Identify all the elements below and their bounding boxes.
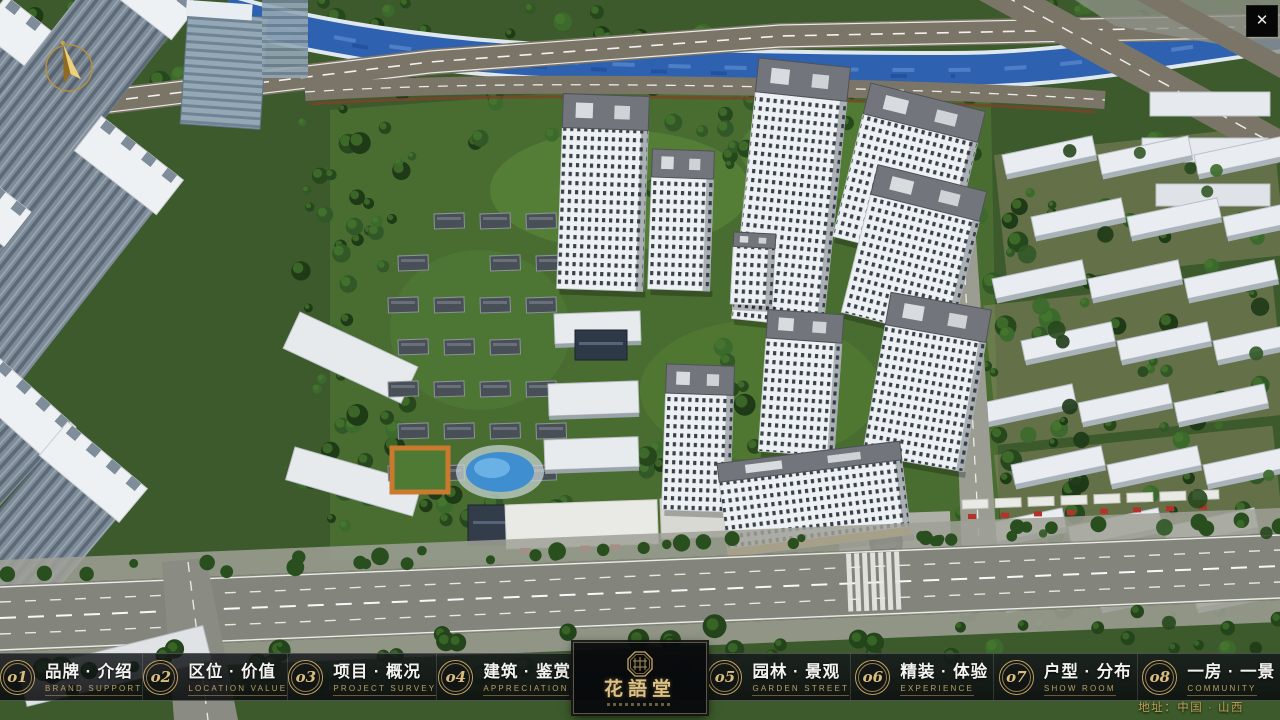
nav-item-garden[interactable]: o5 园林 · 景观 GARDEN STREET bbox=[707, 654, 851, 700]
nav-item-experience[interactable]: o6 精装 · 体验 EXPERIENCE bbox=[851, 654, 995, 700]
brand-seal-icon bbox=[627, 651, 653, 677]
nav-number-badge: o4 bbox=[438, 660, 473, 695]
nav-item-brand-intro[interactable]: o1 品牌 · 介绍 BRAND SUPPORT bbox=[0, 654, 143, 700]
nav-label-zh: 户型 · 分布 bbox=[1044, 658, 1132, 682]
nav-label-en: EXPERIENCE bbox=[900, 684, 974, 696]
nav-label-zh: 品牌 · 介绍 bbox=[45, 658, 133, 682]
nav-number-badge: o8 bbox=[1142, 660, 1177, 695]
nav-number-badge: o6 bbox=[855, 660, 890, 695]
close-icon: ✕ bbox=[1256, 12, 1269, 29]
nav-label-en: LOCATION VALUE bbox=[188, 684, 287, 696]
map-viewport[interactable] bbox=[0, 0, 1280, 720]
nav-label-zh: 一房 · 一景 bbox=[1187, 658, 1275, 682]
nav-item-project-survey[interactable]: o3 项目 · 概况 PROJECT SURVEY bbox=[288, 654, 437, 700]
app-window: ✕ o1 品牌 · 介绍 BRAND SUPPORT o2 区位 · 价值 LO… bbox=[0, 0, 1280, 720]
brand-tagline bbox=[607, 703, 673, 706]
nav-group-left: o1 品牌 · 介绍 BRAND SUPPORT o2 区位 · 价值 LOCA… bbox=[0, 654, 573, 700]
nav-number-badge: o7 bbox=[999, 660, 1034, 695]
nav-label-en: GARDEN STREET bbox=[752, 684, 849, 696]
nav-label-en: COMMUNITY bbox=[1187, 684, 1256, 696]
nav-number-badge: o1 bbox=[0, 660, 35, 695]
nav-number-badge: o2 bbox=[143, 660, 178, 695]
nav-item-community[interactable]: o8 一房 · 一景 COMMUNITY bbox=[1138, 654, 1280, 700]
nav-label-zh: 项目 · 概况 bbox=[333, 658, 421, 682]
nav-label-en: APPRECIATION bbox=[483, 684, 568, 696]
nav-label-en: PROJECT SURVEY bbox=[333, 684, 436, 696]
nav-item-architecture[interactable]: o4 建筑 · 鉴赏 APPRECIATION bbox=[437, 654, 573, 700]
nav-group-right: o5 园林 · 景观 GARDEN STREET o6 精装 · 体验 EXPE… bbox=[707, 654, 1280, 700]
nav-label-zh: 区位 · 价值 bbox=[188, 658, 276, 682]
nav-label-en: BRAND SUPPORT bbox=[45, 684, 142, 696]
nav-label-zh: 建筑 · 鉴赏 bbox=[483, 658, 571, 682]
nav-item-location-value[interactable]: o2 区位 · 价值 LOCATION VALUE bbox=[143, 654, 288, 700]
nav-label-zh: 精装 · 体验 bbox=[900, 658, 988, 682]
project-address: 地址：中国 · 山西 bbox=[1138, 699, 1244, 715]
nav-label-zh: 园林 · 景观 bbox=[752, 658, 840, 682]
compass-icon bbox=[40, 32, 98, 98]
brand-logo-box[interactable]: 花語堂 bbox=[573, 642, 707, 714]
nav-item-floorplans[interactable]: o7 户型 · 分布 SHOW ROOM bbox=[994, 654, 1138, 700]
nav-number-badge: o3 bbox=[288, 660, 323, 695]
close-button[interactable]: ✕ bbox=[1246, 5, 1278, 37]
nav-number-badge: o5 bbox=[707, 660, 742, 695]
brand-title: 花語堂 bbox=[604, 680, 676, 699]
bottom-navbar: o1 品牌 · 介绍 BRAND SUPPORT o2 区位 · 价值 LOCA… bbox=[0, 653, 1280, 701]
nav-label-en: SHOW ROOM bbox=[1044, 684, 1116, 696]
